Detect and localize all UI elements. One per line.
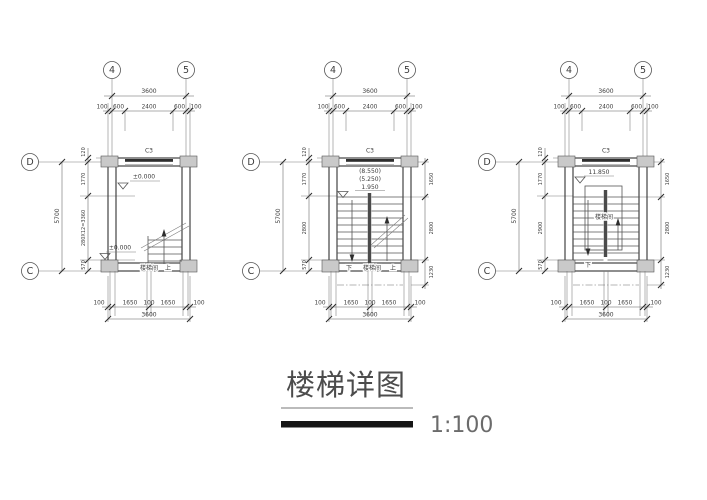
- stair-rail: [368, 193, 371, 263]
- grid-label-5: 5: [404, 65, 410, 76]
- elevation-markers: 11.850: [575, 169, 614, 183]
- window-c3: C3: [346, 148, 394, 165]
- dim-top-seg-1: 100: [96, 105, 107, 111]
- elevation-text: 11.850: [589, 169, 610, 176]
- column: [180, 260, 197, 272]
- dim-bot-seg-5: 100: [193, 301, 204, 307]
- column: [401, 260, 418, 272]
- dim-top-overall: 3600: [141, 88, 156, 95]
- dim-left-overall: 5700: [275, 208, 282, 223]
- column: [322, 156, 339, 167]
- dim-left-offset: 120: [538, 147, 544, 157]
- dim-top-seg-5: 100: [647, 105, 658, 111]
- room-labels: 楼梯间 下: [585, 213, 613, 269]
- dim-bot-overall: 3600: [362, 312, 377, 319]
- title-block: 楼梯详图 1:100: [281, 368, 493, 438]
- column: [558, 156, 575, 167]
- dim-bot-overall: 3600: [598, 312, 613, 319]
- column: [637, 260, 654, 272]
- elevation-text: 1.950: [361, 184, 378, 191]
- dim-top-overall: 3600: [598, 88, 613, 95]
- up-label: 上: [390, 264, 396, 272]
- dim-bot-seg-4: 1650: [618, 301, 633, 307]
- elevation-text: ±0.000: [133, 174, 155, 181]
- dim-left-seg-3: 570: [302, 260, 308, 270]
- grid-label-4: 4: [566, 65, 572, 76]
- dim-left-seg-2: 280X12=3360: [81, 210, 87, 246]
- scale-label: 1:100: [430, 413, 493, 438]
- drawing-title: 楼梯详图: [286, 368, 406, 402]
- down-label: 下: [346, 265, 352, 272]
- stair-rail: [604, 190, 607, 257]
- dim-right-seg-3: 1230: [429, 266, 435, 279]
- dim-top-seg-2: 600: [570, 105, 581, 111]
- dim-bot-seg-1: 100: [314, 301, 325, 307]
- column: [180, 156, 197, 167]
- dim-bot-seg-3: 100: [600, 301, 611, 307]
- bottom-dimensions: 100 1650 100 1650 100 3600: [93, 271, 204, 322]
- room-label: 楼梯间: [140, 264, 158, 272]
- dim-right-seg-2: 2800: [665, 222, 671, 235]
- dim-left-offset: 120: [302, 147, 308, 157]
- up-label: 上: [165, 264, 171, 272]
- stair-flights: [573, 186, 639, 260]
- grid-bubbles-left: D C: [243, 154, 330, 280]
- elevation-marker-icon: [118, 183, 128, 189]
- dim-left-overall: 5700: [54, 208, 61, 223]
- dim-bot-overall: 3600: [141, 312, 156, 319]
- dim-left-seg-3: 570: [81, 260, 87, 270]
- dim-top-seg-1: 100: [553, 105, 564, 111]
- dim-bot-seg-5: 100: [414, 301, 425, 307]
- grid-label-C: C: [27, 266, 34, 277]
- grid-label-4: 4: [109, 65, 115, 76]
- dim-top-seg-5: 100: [411, 105, 422, 111]
- room-label: 楼梯间: [595, 213, 613, 221]
- column: [401, 156, 418, 167]
- grid-label-C: C: [484, 266, 491, 277]
- dim-top-overall: 3600: [362, 88, 377, 95]
- grid-label-C: C: [248, 266, 255, 277]
- room-label: 楼梯间: [363, 264, 381, 272]
- dim-top-seg-3: 2400: [363, 105, 378, 111]
- up-arrow-icon: [385, 216, 390, 224]
- flight-arrow-icon: [616, 218, 621, 226]
- dim-top-seg-3: 2400: [142, 105, 157, 111]
- dim-bot-seg-2: 1650: [344, 301, 359, 307]
- stair-plan-top: 4 5 3600 100 600 2400 600 100 D C: [479, 62, 672, 323]
- stair-plan-ground: 4 5 3600 100 600 2400 600 100 D C: [22, 62, 205, 323]
- room-labels: 楼梯间 上: [140, 264, 171, 272]
- grid-label-D: D: [247, 157, 254, 168]
- window-label: C3: [145, 148, 153, 155]
- up-arrow-icon: [162, 229, 167, 237]
- stair-treads: [148, 236, 182, 263]
- dim-left-seg-2: 2800: [302, 222, 308, 235]
- down-arrow-icon: [350, 255, 355, 263]
- bottom-dimensions: 100 1650 100 1650 100 3600: [314, 271, 425, 322]
- dim-top-seg-5: 100: [190, 105, 201, 111]
- dim-bot-seg-4: 1650: [161, 301, 176, 307]
- dim-right-seg-3: 1230: [665, 266, 671, 279]
- stair-treads-right: [608, 197, 640, 260]
- title-underline-bar: [281, 421, 413, 428]
- elevation-marker-icon: [575, 177, 585, 183]
- column: [101, 156, 118, 167]
- dim-bot-seg-1: 100: [93, 301, 104, 307]
- elevation-text: (5.250): [359, 176, 381, 183]
- stair-detail-drawing: 4 5 3600 100 600 2400 600 100 D C: [0, 0, 707, 500]
- down-label: 下: [585, 262, 591, 269]
- dim-right-seg-1: 1650: [429, 173, 435, 186]
- dim-top-seg-4: 600: [395, 105, 406, 111]
- stair-flights: [337, 193, 408, 263]
- dim-left-seg-1: 1770: [81, 173, 87, 186]
- dim-bot-seg-4: 1650: [382, 301, 397, 307]
- dim-bot-seg-3: 100: [364, 301, 375, 307]
- window-label: C3: [366, 148, 374, 155]
- dim-top-seg-4: 600: [631, 105, 642, 111]
- dim-bot-seg-2: 1650: [580, 301, 595, 307]
- window-c3: C3: [125, 148, 173, 165]
- dim-bot-seg-1: 100: [550, 301, 561, 307]
- column: [558, 260, 575, 272]
- dim-right-seg-1: 1650: [665, 173, 671, 186]
- dim-left-offset: 120: [81, 147, 87, 157]
- dim-bot-seg-3: 100: [143, 301, 154, 307]
- dim-left-seg-2: 2900: [538, 222, 544, 235]
- dim-top-seg-1: 100: [317, 105, 328, 111]
- grid-bubbles-left: D C: [22, 154, 109, 280]
- bottom-dimensions: 100 1650 100 1650 100 3600: [550, 271, 661, 322]
- dim-top-seg-3: 2400: [599, 105, 614, 111]
- column: [637, 156, 654, 167]
- dim-right-seg-2: 2800: [429, 222, 435, 235]
- down-arrow-icon: [586, 249, 591, 257]
- grid-label-5: 5: [640, 65, 646, 76]
- dim-top-seg-2: 600: [113, 105, 124, 111]
- dim-left-seg-3: 570: [538, 260, 544, 270]
- stair-detail-sheet: 4 5 3600 100 600 2400 600 100 D C: [0, 0, 707, 500]
- elevation-text: ±0.000: [109, 245, 131, 252]
- grid-label-5: 5: [183, 65, 189, 76]
- grid-bubbles-left: D C: [479, 154, 566, 280]
- grid-label-D: D: [26, 157, 33, 168]
- window-c3: C3: [582, 148, 630, 165]
- dim-top-seg-4: 600: [174, 105, 185, 111]
- dim-left-overall: 5700: [511, 208, 518, 223]
- column: [322, 260, 339, 272]
- dim-left-seg-1: 1770: [538, 173, 544, 186]
- window-label: C3: [602, 148, 610, 155]
- column: [101, 260, 118, 272]
- grid-label-4: 4: [330, 65, 336, 76]
- elevation-text: (8.550): [359, 168, 381, 175]
- grid-label-D: D: [483, 157, 490, 168]
- dim-bot-seg-2: 1650: [123, 301, 138, 307]
- elevation-markers: (8.550) (5.250) 1.950: [338, 168, 385, 198]
- stair-plan-middle: 4 5 3600 100 600 2400 600 100 D C: [243, 62, 436, 323]
- dim-top-seg-2: 600: [334, 105, 345, 111]
- dim-left-seg-1: 1770: [302, 173, 308, 186]
- dim-bot-seg-5: 100: [650, 301, 661, 307]
